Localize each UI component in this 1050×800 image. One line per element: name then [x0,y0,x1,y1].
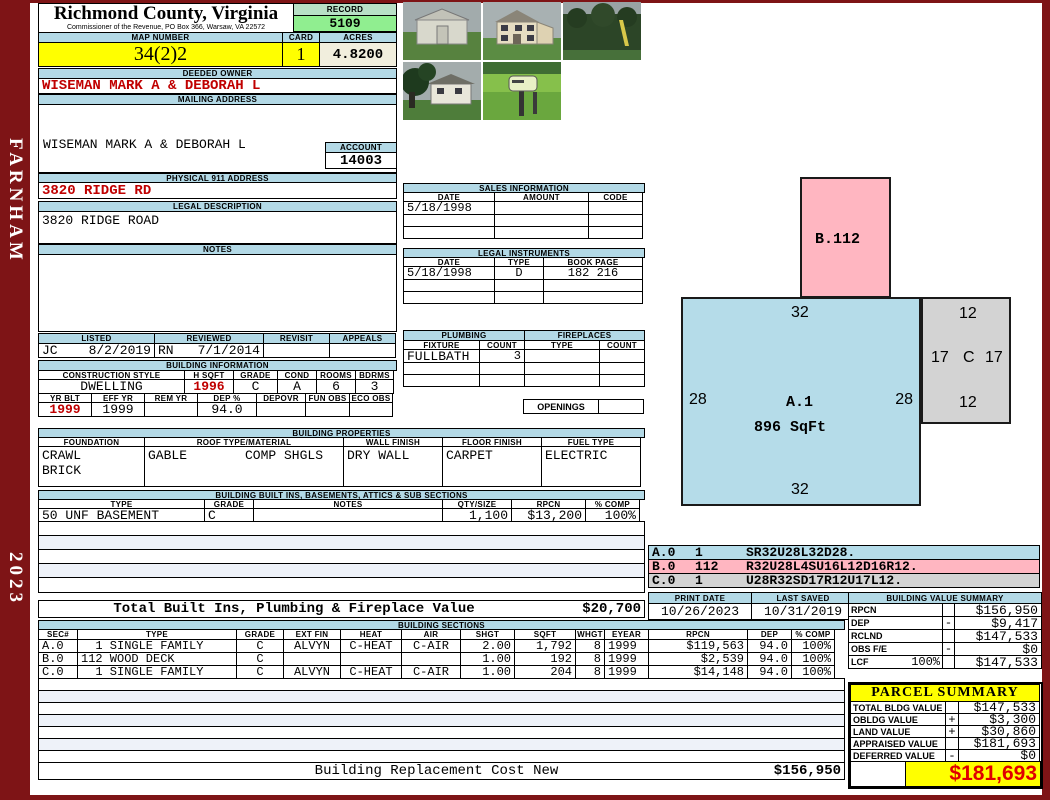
legend-path: U28R32SD17R12U17L12. [743,573,1040,588]
builtins-cell: C [204,508,254,522]
deeded-owner: DEEDED OWNER WISEMAN MARK A & DEBORAH L [38,68,397,94]
bi-cell: 1999 [91,402,145,417]
sketch-dim: 28 [895,391,913,409]
legend-qty: 1 [692,573,744,588]
last-saved-value: 10/31/2019 [751,603,855,620]
instruments-cell: D [494,266,544,280]
print-date-value: 10/26/2023 [648,603,752,620]
instruments-cell: 5/18/1998 [403,266,495,280]
map-number-value: 34(2)2 [38,42,283,67]
bs-cell: 1.00 [460,652,515,666]
acres-value: 4.8200 [319,42,397,67]
bi-cell: 94.0 [197,402,257,417]
legend-sec: B.0 [648,559,693,574]
property-photo-mailbox[interactable] [483,62,561,120]
building-sections: BUILDING SECTIONS SEC# TYPE GRADE EXT FI… [38,620,845,780]
roof-type: GABLE [148,448,187,463]
fireplaces-cell [524,349,600,363]
replacement-cost-label: Building Replacement Cost New [42,763,711,779]
sketch-dim: 32 [791,481,809,499]
appeals-value [329,343,396,358]
legend-sec: C.0 [648,573,693,588]
bs-cell: 100% [791,665,835,679]
legal-description: LEGAL DESCRIPTION 3820 RIDGE ROAD [38,201,397,244]
map-card-acres: MAP NUMBER CARD ACRES 34(2)2 1 4.8200 [38,32,397,67]
builtins-cell: $13,200 [511,508,586,522]
print-saved-dates: PRINT DATE LAST SAVED 10/26/2023 10/31/2… [648,592,855,620]
bs-cell: 112 WOOD DECK [77,652,237,666]
builtins-cell [253,508,443,522]
fireplaces-cell [599,349,645,363]
bi-cell: DWELLING [38,379,185,394]
bs-cell [401,652,461,666]
bs-cell: C [236,665,284,679]
reviewed-date: 7/1/2014 [198,343,260,358]
sketch-dim: 17 [985,349,1003,367]
bs-cell: 1 SINGLE FAMILY [77,665,237,679]
card-value: 1 [282,42,320,67]
bs-cell: A.0 [38,639,78,653]
bs-cell: 1999 [604,665,649,679]
bottom-border-band [0,795,1050,800]
listed-date: 8/2/2019 [89,343,151,358]
bs-cell: $2,539 [648,652,748,666]
bs-cell: $119,563 [648,639,748,653]
notes-value [38,254,397,332]
bi-cell: C [233,379,278,394]
sketch-section-c: 12 17 C 17 12 [921,297,1011,424]
empty-row [38,577,645,593]
bs-cell: 100% [791,652,835,666]
plumbing-fireplaces: PLUMBING FIREPLACES FIXTURE COUNT TYPE C… [403,330,645,414]
bs-cell: C [236,639,284,653]
sketch-section-a-label: A.1 [786,394,813,411]
sketch-section-c-label: C [963,349,975,367]
bvs-value: $147,533 [954,629,1042,643]
bi-cell: 6 [316,379,356,394]
fireplaces-cell [524,374,600,387]
foundation-line: BRICK [42,463,141,478]
bs-cell: C-AIR [401,665,461,679]
sketch-section-b: B.112 [800,177,891,298]
county-header: Richmond County, Virginia Commissioner o… [38,3,294,33]
revisit-value [263,343,330,358]
bs-cell: 204 [514,665,576,679]
sales-cell [588,201,643,215]
bvs-label: RCLND [848,629,943,643]
empty-row [38,535,645,550]
bs-cell: C-HEAT [340,665,402,679]
account-box: ACCOUNT 14003 [325,142,397,169]
reviewed-by: RN [158,343,174,358]
sales-cell [403,226,495,239]
empty-row [38,521,645,536]
instruments-cell [543,291,643,304]
bi-cell [349,402,393,417]
building-value-summary: BUILDING VALUE SUMMARY RPCN $156,950 DEP… [848,592,1042,669]
bs-cell: 1.00 [460,665,515,679]
property-photo-house-front[interactable] [483,2,561,60]
sales-information: SALES INFORMATION DATE AMOUNT CODE 5/18/… [403,183,645,239]
sketch-legend: A.0 1 SR32U28L32D28. B.0 112 R32U28L4SU1… [648,545,1040,588]
county-subtitle: Commissioner of the Revenue, PO Box 366,… [39,24,293,32]
left-border-band: FARNHAM 2023 [0,0,30,800]
bs-cell: 100% [791,639,835,653]
replacement-cost-row: Building Replacement Cost New $156,950 [38,762,845,780]
account-value: 14003 [325,152,397,169]
builtins-cell: 50 UNF BASEMENT [38,508,205,522]
instruments-cell [403,291,495,304]
roof-value: GABLECOMP SHGLS [144,446,344,487]
bs-cell: 94.0 [747,652,792,666]
sales-cell [494,226,589,239]
bs-cell: C [236,652,284,666]
builtins-cell: 100% [585,508,640,522]
legend-qty: 112 [692,559,744,574]
plumbing-cell: 3 [479,349,525,363]
legend-sec: A.0 [648,545,693,560]
sketch-section-a-sqft: 896 SqFt [754,419,826,436]
sketch-dim: 32 [791,304,809,322]
bs-cell: ALVYN [283,639,341,653]
parcel-summary: PARCEL SUMMARY TOTAL BLDG VALUE $147,533… [848,682,1043,789]
property-photo-house-trees[interactable] [403,62,481,120]
foundation-line: CRAWL [42,448,141,463]
bs-cell: C-AIR [401,639,461,653]
instruments-cell: 182 216 [543,266,643,280]
photo-grid [403,2,641,120]
property-record-card: FARNHAM 2023 Richmond County, Virginia C… [0,0,1050,800]
empty-row [38,563,645,578]
bi-cell [305,402,350,417]
sketch-section-a: 32 28 28 A.1 896 SqFt 32 [681,297,921,506]
property-photo-shed[interactable] [403,2,481,60]
record-box: RECORD 5109 [293,3,397,32]
bs-cell: 1,792 [514,639,576,653]
sketch-dim: 12 [959,305,977,323]
legend-qty: 1 [692,545,744,560]
bvs-label: OBS F/E [848,642,943,656]
fuel-type-value: ELECTRIC [541,446,641,487]
year-label: 2023 [4,552,26,606]
bi-cell [256,402,306,417]
county-title: Richmond County, Virginia [39,4,293,24]
property-photo-trees[interactable] [563,2,641,60]
listed-by: JC [42,343,58,358]
bs-cell: $14,148 [648,665,748,679]
floor-finish-value: CARPET [442,446,542,487]
bs-cell: 94.0 [747,639,792,653]
bs-cell: 8 [575,652,605,666]
bi-cell: 3 [355,379,394,394]
total-builtins-value: $20,700 [546,601,641,617]
bs-cell: 94.0 [747,665,792,679]
sketch-section-b-label: B.112 [815,231,860,248]
bs-cell: ALVYN [283,665,341,679]
taxable-label-line: TAXABLE [853,785,903,787]
instruments-cell [494,291,544,304]
bs-cell: C.0 [38,665,78,679]
replacement-cost-value: $156,950 [711,763,841,779]
right-border-band [1042,0,1050,800]
builtins-section: BUILDING BUILT INS, BASEMENTS, ATTICS & … [38,490,645,593]
total-builtins-row: Total Built Ins, Plumbing & Fireplace Va… [38,600,645,618]
bvs-value: $147,533 [954,655,1042,669]
bs-cell: 2.00 [460,639,515,653]
sketch-dim: 12 [959,394,977,412]
bs-cell: 192 [514,652,576,666]
bs-cell [283,652,341,666]
reviewed-value: RN7/1/2014 [154,343,264,358]
bi-cell [144,402,198,417]
fireplaces-cell [599,374,645,387]
physical-address: PHYSICAL 911 ADDRESS 3820 RIDGE RD [38,173,397,199]
bi-cell: 1999 [38,402,92,417]
openings-label: OPENINGS [523,399,599,414]
deeded-owner-value: WISEMAN MARK A & DEBORAH L [38,78,397,94]
plumbing-cell [479,374,525,387]
bs-cell: 8 [575,639,605,653]
plumbing-cell: FULLBATH [403,349,480,363]
review-history: LISTED REVIEWED REVISIT APPEALS JC8/2/20… [38,333,396,358]
taxable-value: $181,693 [905,761,1041,787]
builtins-cell: 1,100 [442,508,512,522]
bs-cell [340,652,402,666]
openings-value [598,399,644,414]
bvs-value: $0 [954,642,1042,656]
listed-value: JC8/2/2019 [38,343,155,358]
bs-cell: 8 [575,665,605,679]
empty-row [38,549,645,564]
bs-cell: 1999 [604,639,649,653]
bi-cell: 1996 [184,379,234,394]
bs-cell: 1 SINGLE FAMILY [77,639,237,653]
bvs-value: $9,417 [954,616,1042,630]
record-value: 5109 [293,15,397,32]
bvs-pct: 100% [911,655,940,669]
physical-address-value: 3820 RIDGE RD [38,182,397,199]
total-builtins-label: Total Built Ins, Plumbing & Fireplace Va… [42,601,546,617]
total-builtins: Total Built Ins, Plumbing & Fireplace Va… [38,600,645,618]
legal-description-value: 3820 RIDGE ROAD [38,211,397,244]
bs-cell: 1999 [604,652,649,666]
sales-cell [588,226,643,239]
bvs-label-text: LCF [851,657,869,667]
bvs-value: $156,950 [954,603,1042,617]
plumbing-cell [403,374,480,387]
foundation-value: CRAWLBRICK [38,446,145,487]
taxable-value-label: TAXABLE VALUE [850,761,906,787]
parcel-summary-title: PARCEL SUMMARY [850,684,1040,702]
roof-material: COMP SHGLS [245,448,323,463]
bvs-label: DEP [848,616,943,630]
building-properties: BUILDING PROPERTIES FOUNDATION ROOF TYPE… [38,428,645,487]
sales-cell [494,201,589,215]
sketch-dim: 28 [689,391,707,409]
legend-path: SR32U28L32D28. [743,545,1040,560]
bvs-label: RPCN [848,603,943,617]
building-information: BUILDING INFORMATION CONSTRUCTION STYLE … [38,360,397,417]
bi-cell: A [277,379,317,394]
legend-path: R32U28L4SU16L12D16R12. [743,559,1040,574]
bvs-label: LCF100% [848,655,943,669]
bs-cell: B.0 [38,652,78,666]
notes: NOTES [38,244,397,332]
wall-finish-value: DRY WALL [343,446,443,487]
district-label: FARNHAM [4,138,26,264]
sales-cell: 5/18/1998 [403,201,495,215]
legal-instruments: LEGAL INSTRUMENTS DATE TYPE BOOK PAGE 5/… [403,248,645,304]
bs-cell: C-HEAT [340,639,402,653]
sketch-dim: 17 [931,349,949,367]
